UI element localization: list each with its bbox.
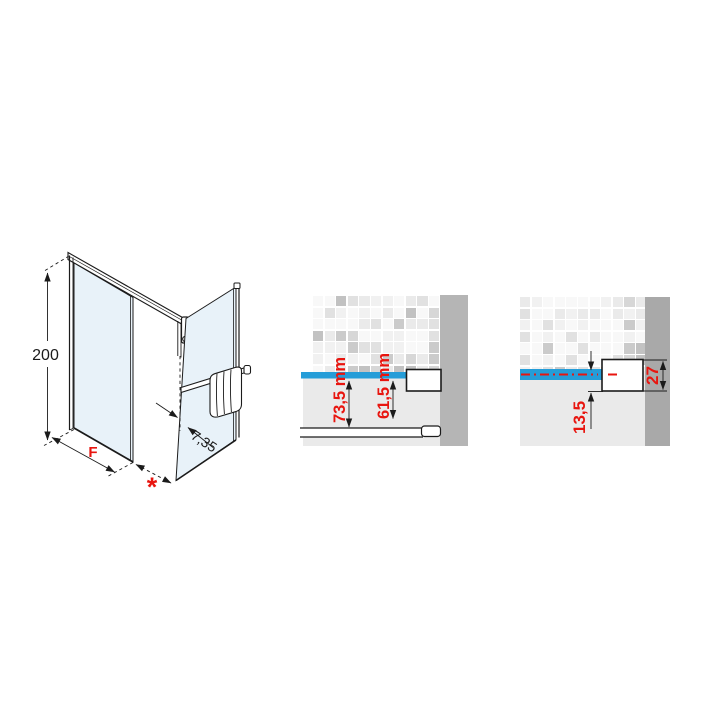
iso-view-group: 200 — [32, 253, 250, 503]
dim-73-5-label: 73,5 mm — [331, 357, 349, 423]
towel — [210, 367, 242, 417]
dim-61-5-label: 61,5 mm — [375, 353, 393, 419]
dim-width-f-label: F — [88, 444, 97, 461]
dim-73-5: 73,5 mm — [331, 357, 349, 427]
wall-section — [440, 295, 468, 446]
dim-27-label: 27 — [643, 366, 662, 385]
dim-13-5-label: 13,5 — [570, 401, 589, 434]
diagram-linework: 200 — [0, 0, 720, 720]
mid-detail-group: 73,5 mm 61,5 mm — [300, 295, 468, 446]
dim-gap-asterisk: * — [136, 465, 171, 503]
wall-bracket — [407, 370, 442, 392]
dim-61-5: 61,5 mm — [375, 353, 393, 419]
joint-profile — [300, 426, 441, 437]
gap-asterisk-label: * — [147, 472, 158, 502]
right-detail-group: 13,5 27 — [520, 297, 670, 446]
dim-height-200-label: 200 — [32, 347, 59, 364]
dim-height-200: 200 — [32, 256, 74, 446]
shower-enclosure-technical-diagram: 200 — [0, 0, 720, 720]
